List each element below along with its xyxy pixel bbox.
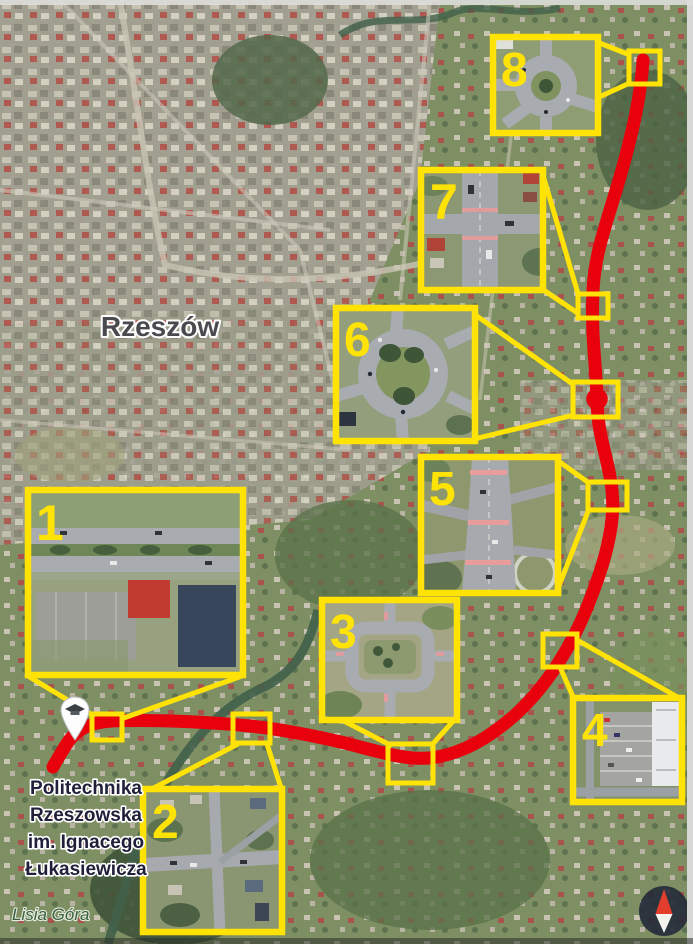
callout-inset-2: 2 xyxy=(143,789,282,932)
park-patch xyxy=(275,500,425,610)
forest-patch-south xyxy=(310,790,550,930)
callout-inset-8: 8 xyxy=(493,37,598,133)
bottom-edge-strip xyxy=(0,938,693,944)
city-label-rzeszow: Rzeszów xyxy=(101,311,219,342)
callout-number-4: 4 xyxy=(582,704,608,756)
callout-inset-3: 3 xyxy=(318,600,458,720)
satellite-map-canvas: 1 2 xyxy=(0,0,693,944)
callout-number-7: 7 xyxy=(430,174,458,230)
field-patch xyxy=(15,427,125,483)
university-label-line3: im. Ignacego xyxy=(28,832,144,853)
callout-number-6: 6 xyxy=(344,314,371,367)
right-edge-strip xyxy=(687,0,693,944)
callout-inset-4: 4 xyxy=(573,698,682,802)
compass-icon xyxy=(639,886,689,936)
hill-label-lisia-gora: Lisia Góra xyxy=(12,905,89,924)
callout-number-1: 1 xyxy=(36,495,64,551)
callout-number-5: 5 xyxy=(429,463,456,516)
callout-inset-1: 1 xyxy=(28,490,243,675)
top-edge-strip xyxy=(0,0,693,5)
callout-number-2: 2 xyxy=(152,796,179,849)
callout-inset-7: 7 xyxy=(416,170,558,290)
university-label-line2: Rzeszowska xyxy=(30,805,142,826)
map-svg: 1 2 xyxy=(0,0,693,944)
callout-number-3: 3 xyxy=(330,606,357,659)
university-label-line1: Politechnika xyxy=(30,778,142,799)
forest-patch xyxy=(212,35,328,125)
callout-number-8: 8 xyxy=(501,44,528,97)
callout-inset-6: 6 xyxy=(336,308,475,441)
university-label-line4: Łukasiewicza xyxy=(25,859,147,880)
callout-inset-5: 5 xyxy=(414,457,558,596)
